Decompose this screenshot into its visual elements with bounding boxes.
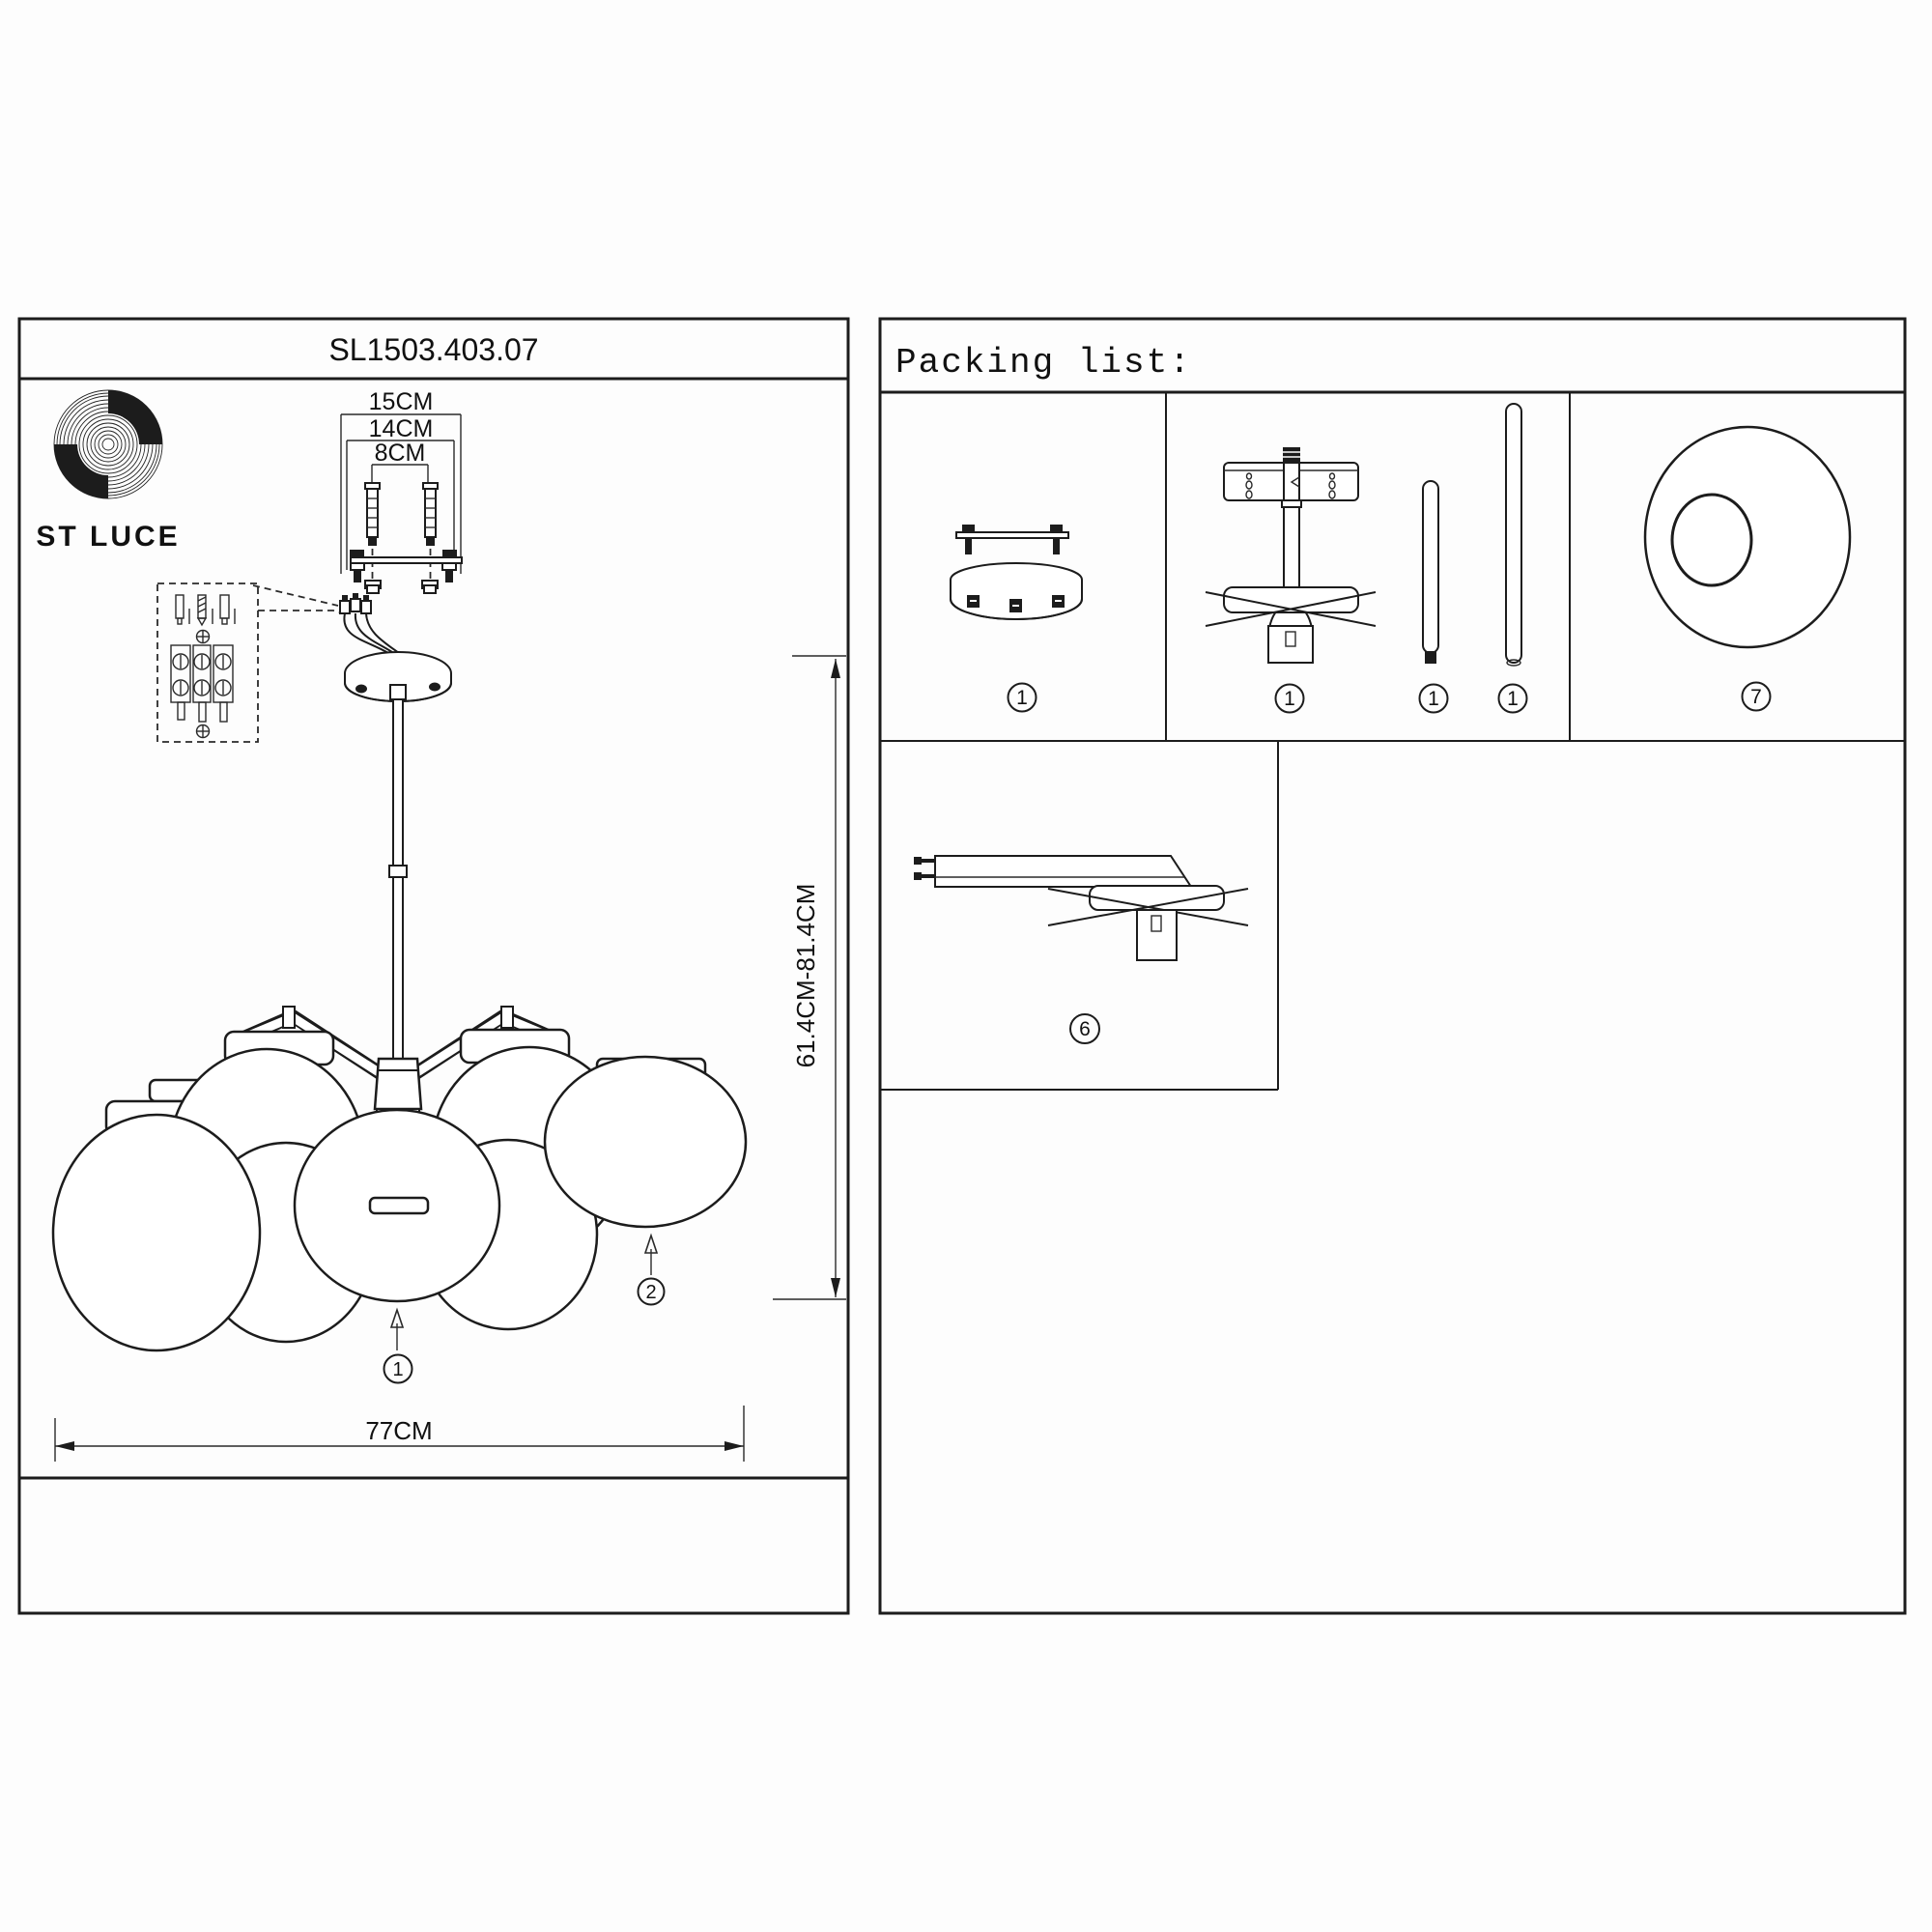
drawing-canvas: SL1503.403.07 ST LUCE 15CM 14CM 8C [0, 0, 1932, 1932]
packing-item-shade: 7 [1645, 427, 1850, 711]
bracket-bolt-right-icon [442, 550, 457, 582]
height-dimension: 61.4CM-81.4CM [773, 656, 846, 1299]
screw-head-top-icon [197, 631, 210, 643]
arm-tab-left [283, 1007, 295, 1028]
svg-text:1: 1 [1428, 688, 1439, 710]
square-nut-left-icon [365, 581, 381, 593]
screw-icon [220, 595, 229, 624]
svg-text:7: 7 [1750, 686, 1762, 708]
drill-bit-icon [198, 595, 206, 625]
anchor-bolt-left-icon [365, 483, 380, 580]
instruction-sheet: SL1503.403.07 ST LUCE 15CM 14CM 8C [0, 0, 1932, 1932]
packing-qty-arm: 6 [1070, 1014, 1099, 1043]
svg-text:1: 1 [1284, 688, 1295, 710]
arrow-down-icon [831, 1278, 840, 1297]
wire-connector [340, 593, 403, 656]
dim-15cm: 15CM [369, 388, 434, 415]
hub-block [375, 1059, 421, 1109]
svg-text:2: 2 [645, 1282, 656, 1303]
wire-3 [366, 613, 403, 656]
packing-qty-assembly: 1 [1276, 685, 1304, 713]
dim-8cm: 8CM [375, 440, 426, 467]
brand-name: ST LUCE [36, 521, 180, 553]
packing-qty-rod-short: 1 [1420, 685, 1448, 713]
packing-list-title: Packing list: [895, 343, 1192, 383]
canopy-collar [390, 685, 406, 699]
pack-arm-bar-icon [935, 856, 1191, 887]
packing-item-canopy: 1 [951, 525, 1082, 712]
svg-text:77CM: 77CM [365, 1416, 432, 1445]
glass-shade-far-left [53, 1115, 260, 1350]
logo-swoosh-bottom-icon [54, 444, 108, 498]
packing-qty-shade: 7 [1743, 683, 1771, 711]
chandelier [53, 1007, 746, 1350]
shade-cup-center [370, 1198, 428, 1213]
pack-shade-hole-icon [1672, 495, 1751, 585]
bracket-bolt-left-icon [350, 550, 364, 582]
width-dimension: 77CM [55, 1406, 744, 1462]
svg-text:1: 1 [1507, 688, 1519, 710]
arrow-up-icon [831, 659, 840, 678]
ceiling-canopy [345, 652, 451, 701]
model-number: SL1503.403.07 [328, 332, 538, 367]
svg-text:61.4CM-81.4CM: 61.4CM-81.4CM [791, 884, 820, 1068]
rod-joint [389, 866, 407, 877]
st-luce-logo: ST LUCE [36, 390, 180, 553]
glass-shade-far-right [545, 1057, 746, 1227]
pack-rod-short-icon [1423, 481, 1438, 653]
pack-rod-long-icon [1506, 404, 1521, 663]
arm-tab-right [501, 1007, 513, 1028]
packing-item-assembly: 1 1 1 [1206, 404, 1527, 713]
svg-text:6: 6 [1079, 1018, 1091, 1040]
callout-front-shade: 1 [384, 1310, 412, 1383]
wall-plug-icon [176, 595, 184, 624]
arrow-left-icon [55, 1441, 74, 1451]
pack-center-rod-icon [1284, 507, 1299, 589]
drill-template-detail [157, 583, 340, 742]
terminal-block-icon [171, 645, 233, 722]
callout-side-shade: 2 [639, 1236, 665, 1305]
pack-arm-socket-body-icon [1137, 910, 1177, 960]
arrow-right-icon [724, 1441, 744, 1451]
pack-bracket-bar-icon [956, 532, 1068, 538]
screw-head-bottom-icon [197, 725, 210, 738]
svg-text:1: 1 [392, 1359, 403, 1380]
dim-14cm: 14CM [369, 415, 434, 442]
packing-qty-rod-long: 1 [1499, 685, 1527, 713]
square-nut-right-icon [422, 581, 438, 593]
svg-text:1: 1 [1016, 687, 1028, 709]
left-panel: SL1503.403.07 ST LUCE 15CM 14CM 8C [19, 319, 848, 1613]
hanging-rod [389, 699, 407, 1059]
packing-list-panel: Packing list: 1 [880, 319, 1905, 1613]
canopy-screw-left-icon [355, 685, 367, 694]
logo-swoosh-top-icon [108, 390, 162, 444]
canopy-screw-right-icon [429, 683, 440, 692]
leader-line-1 [253, 585, 338, 606]
packing-qty-canopy: 1 [1009, 684, 1037, 712]
leader-line-2 [258, 611, 340, 612]
packing-item-arm: 6 [914, 856, 1248, 1043]
anchor-bolt-right-icon [423, 483, 438, 580]
mounting-bracket-diagram: 15CM 14CM 8CM [341, 388, 462, 593]
